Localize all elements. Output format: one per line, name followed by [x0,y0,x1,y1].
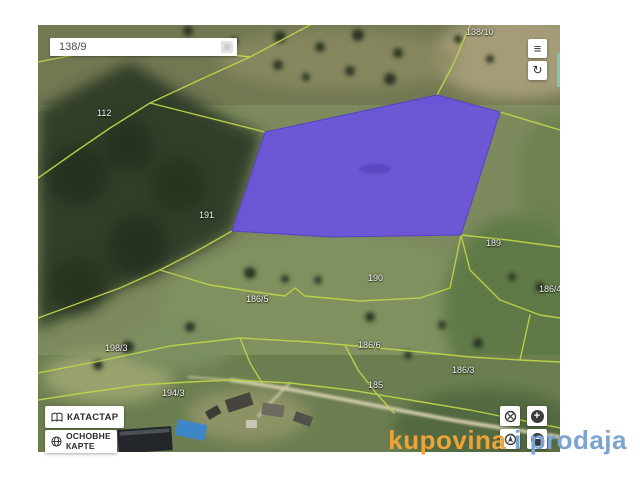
parcel-search [50,38,237,56]
search-icon[interactable] [221,41,233,53]
base-maps-button[interactable]: ОСНОВНЕ КАРТЕ [45,430,117,453]
cadastre-map-page: 138/10112191189190186/5186/4198/3186/619… [0,0,640,480]
menu-button[interactable]: ≡ [528,39,547,58]
base-maps-label: ОСНОВНЕ КАРТЕ [66,432,111,451]
imagery-edge-artifact [557,53,560,87]
map-viewport[interactable]: 138/10112191189190186/5186/4198/3186/619… [38,25,560,452]
site-watermark: kupovina i prodaja [357,401,627,479]
watermark-i: i [506,425,529,455]
watermark-prodaja: prodaja [530,425,627,455]
globe-icon [51,436,62,447]
satellite-map[interactable] [38,25,560,452]
search-input[interactable] [50,38,229,56]
highlighted-parcel-faint-label [359,164,391,174]
watermark-kupovina: kupovina [388,425,506,455]
menu-icon: ≡ [528,39,547,58]
book-icon [51,412,63,422]
refresh-icon: ↻ [528,61,547,80]
katastar-layer-button[interactable]: КАТАСТАР [45,406,124,428]
refresh-button[interactable]: ↻ [528,61,547,80]
katastar-label: КАТАСТАР [67,412,118,423]
